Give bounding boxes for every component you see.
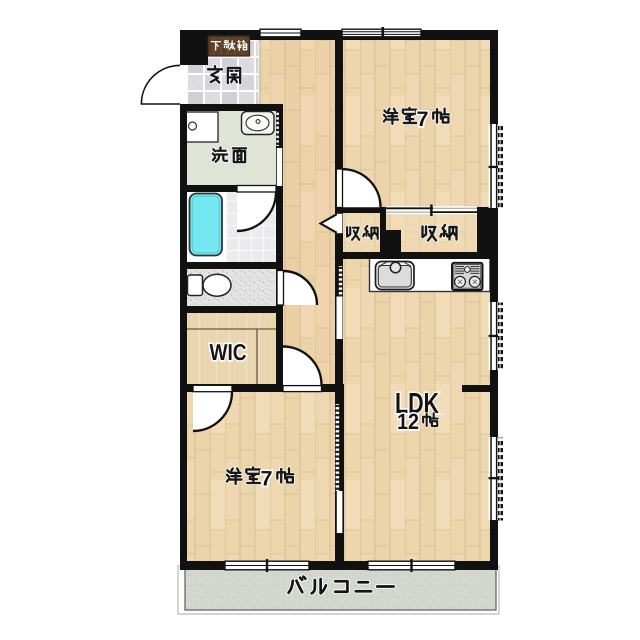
svg-text:7: 7 bbox=[416, 108, 428, 131]
svg-text:WIC: WIC bbox=[209, 339, 246, 365]
svg-text:12: 12 bbox=[397, 409, 419, 434]
svg-text:7: 7 bbox=[260, 467, 272, 490]
